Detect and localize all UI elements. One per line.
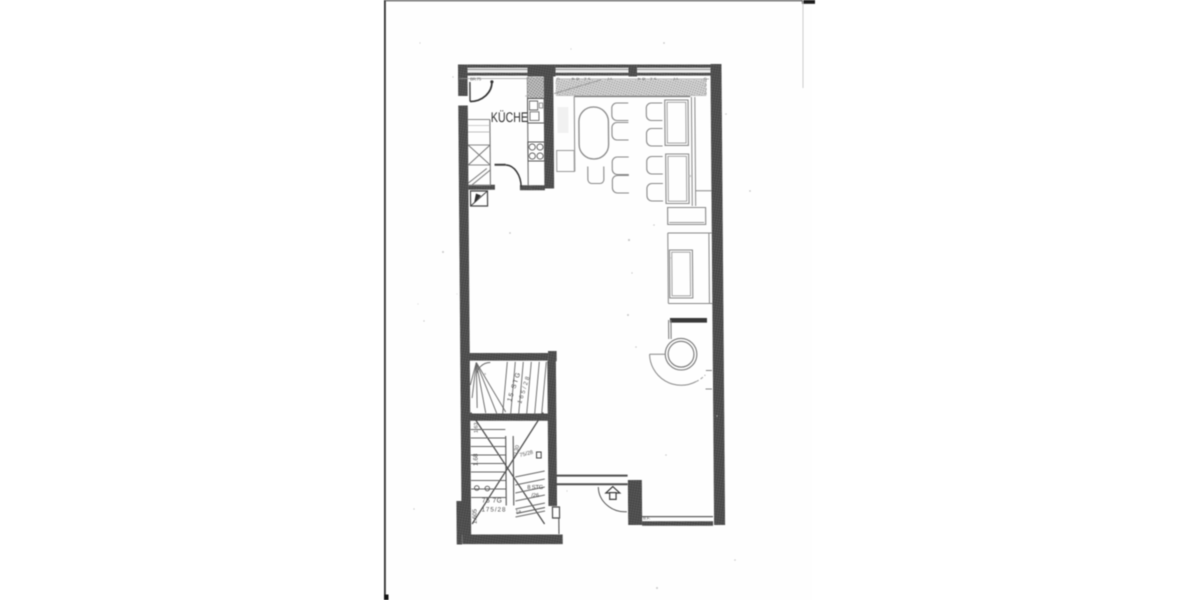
svg-text:75 7G: 75 7G [482,498,502,505]
svg-text:1.605: 1.605 [472,508,478,524]
svg-text:5: 5 [460,78,462,82]
svg-text:1.68: 1.68 [473,453,480,466]
svg-text:B.F.: B.F. [643,515,650,520]
svg-text:8 STG: 8 STG [527,485,544,491]
svg-text:175/28: 175/28 [481,507,506,514]
svg-text:1.63: 1.63 [474,423,480,433]
svg-text:1a: 1a [515,509,521,515]
svg-text:/26: /26 [531,493,539,499]
svg-text:BR.75: BR.75 [470,76,482,81]
svg-text:KÜCHE: KÜCHE [491,108,528,125]
